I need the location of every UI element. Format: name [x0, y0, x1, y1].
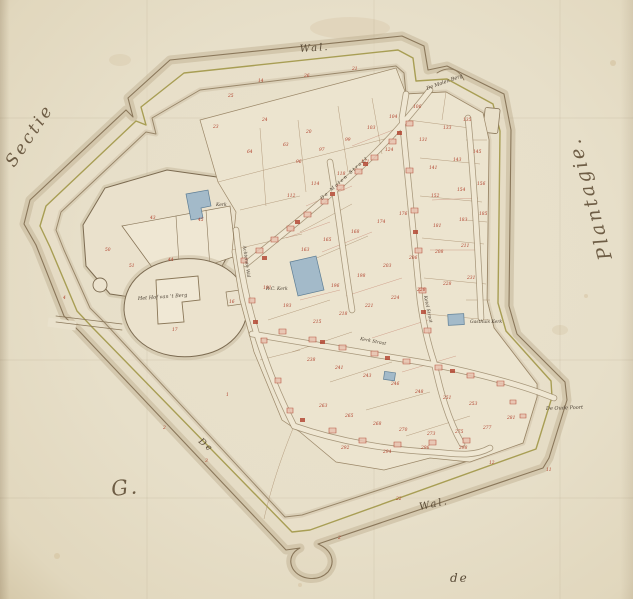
parcel-number: 281	[506, 416, 515, 421]
parcel-number: 17	[172, 328, 178, 333]
parcel-number: 23	[212, 125, 219, 130]
parcel-number: 185	[479, 212, 488, 217]
parcel-number: 163	[301, 248, 310, 253]
scanned-cadastral-map: SectiePlantagie.G.Wal.Wal.DedeDe Molen B…	[0, 0, 633, 599]
parcel-number: 181	[433, 224, 441, 229]
parcel-number: 50	[105, 248, 111, 253]
parcel-number: 152	[431, 194, 440, 199]
parcel-number: 224	[390, 296, 400, 301]
parcel-number: 156	[477, 182, 486, 187]
parcel-number: 2	[337, 536, 341, 541]
parcel-number: 228	[442, 282, 452, 287]
map-canvas: SectiePlantagie.G.Wal.Wal.DedeDe Molen B…	[0, 0, 633, 599]
parcel-number: 1	[226, 393, 229, 398]
parcel-number: 112	[287, 194, 296, 199]
parcel-number: 114	[311, 182, 320, 187]
parcel-number: 193	[283, 304, 292, 309]
parcel-number: 226	[416, 288, 426, 293]
parcel-number: 118	[337, 172, 346, 177]
parcel-number: 99	[345, 138, 351, 143]
parcel-number: 45	[197, 218, 204, 223]
parcel-number: 135	[463, 118, 472, 123]
parcel-number: 208	[434, 250, 444, 255]
parcel-number: 221	[364, 304, 373, 309]
parcel-number: 292	[340, 446, 350, 451]
parcel-number: 97	[319, 148, 325, 153]
parcel-number: 20	[305, 130, 312, 135]
parcel-number: 273	[426, 432, 436, 437]
round-tower	[93, 278, 107, 292]
map-label-oude-poort: De Oude Poort	[545, 405, 584, 412]
parcel-number: 218	[338, 312, 348, 317]
map-label-gasthuis-kerk: Gasthuis Kerk	[470, 319, 502, 325]
parcel-number: 64	[247, 150, 253, 155]
parcel-number: 243	[362, 374, 372, 379]
parcel-number: 253	[468, 402, 478, 407]
parcel-number: 176	[399, 212, 408, 217]
parcel-number: 3	[205, 459, 208, 464]
parcel-number: 16	[229, 300, 235, 305]
parcel-number: 103	[367, 126, 376, 131]
parcel-number: 298	[458, 446, 468, 451]
parcel-number: 294	[382, 450, 392, 455]
parcel-number: 211	[460, 244, 469, 249]
parcel-number: 131	[419, 138, 427, 143]
parcel-number: 104	[389, 115, 398, 120]
parcel-number: 275	[454, 430, 464, 435]
parcel-number: 22	[395, 497, 402, 502]
parcel-number: 183	[459, 218, 468, 223]
parcel-number: 203	[382, 264, 392, 269]
parcel-number: 231	[466, 276, 475, 281]
map-label-de-bottom: de	[450, 571, 469, 585]
hof-bastion	[124, 259, 247, 357]
map-label-sectie: Sectie	[2, 100, 59, 171]
parcel-number: 191	[263, 286, 271, 291]
parcel-number: 277	[482, 426, 492, 431]
parcel-number: 265	[344, 414, 354, 419]
parcel-number: 121	[361, 160, 369, 165]
parcel-number: 63	[283, 143, 289, 148]
parcel-number: 196	[331, 284, 340, 289]
map-label-plantagie: Plantagie.	[563, 134, 617, 263]
parcel-number: 44	[167, 258, 174, 263]
parcel-number: 241	[334, 366, 343, 371]
parcel-number: 26	[303, 74, 310, 79]
parcel-number: 141	[429, 166, 437, 171]
parcel-number: 14	[258, 79, 264, 84]
parcel-number: 251	[442, 396, 451, 401]
parcel-number: 4	[62, 296, 66, 301]
parcel-number: 206	[408, 256, 418, 261]
map-label-g-section: G.	[110, 474, 141, 501]
parcel-number: 268	[372, 422, 382, 427]
parcel-number: 198	[357, 274, 366, 279]
parcel-number: 238	[306, 358, 316, 363]
parcel-number: 296	[420, 446, 430, 451]
map-label-kerk: Kerk	[215, 202, 227, 208]
parcel-number: 2	[162, 426, 166, 431]
small-blue-building	[383, 371, 395, 380]
parcel-number: 263	[318, 404, 328, 409]
gasthuis-church	[448, 314, 465, 326]
parcel-number: 154	[457, 188, 466, 193]
parcel-number: 11	[546, 468, 552, 473]
parcel-number: 25	[227, 94, 234, 99]
parcel-number: 96	[296, 160, 302, 165]
map-label-wal-top: Wal.	[299, 42, 329, 55]
parcel-number: 174	[377, 220, 386, 225]
parcel-number: 12	[489, 461, 495, 466]
parcel-number: 51	[129, 264, 135, 269]
parcel-number: 168	[351, 230, 360, 235]
parcel-number: 165	[323, 238, 332, 243]
parcel-number: 24	[261, 118, 268, 123]
parcel-number: 124	[385, 148, 394, 153]
parcel-number: 215	[312, 320, 322, 325]
parcel-number: 270	[398, 428, 408, 433]
parcel-number: 143	[453, 158, 462, 163]
parcel-number: 21	[351, 67, 358, 72]
parcel-number: 145	[473, 150, 482, 155]
parcel-number: 246	[390, 382, 400, 387]
parcel-number: 248	[414, 390, 424, 395]
parcel-number: 106	[413, 105, 422, 110]
parcel-number: 43	[149, 216, 156, 221]
parcel-number: 133	[443, 126, 452, 131]
